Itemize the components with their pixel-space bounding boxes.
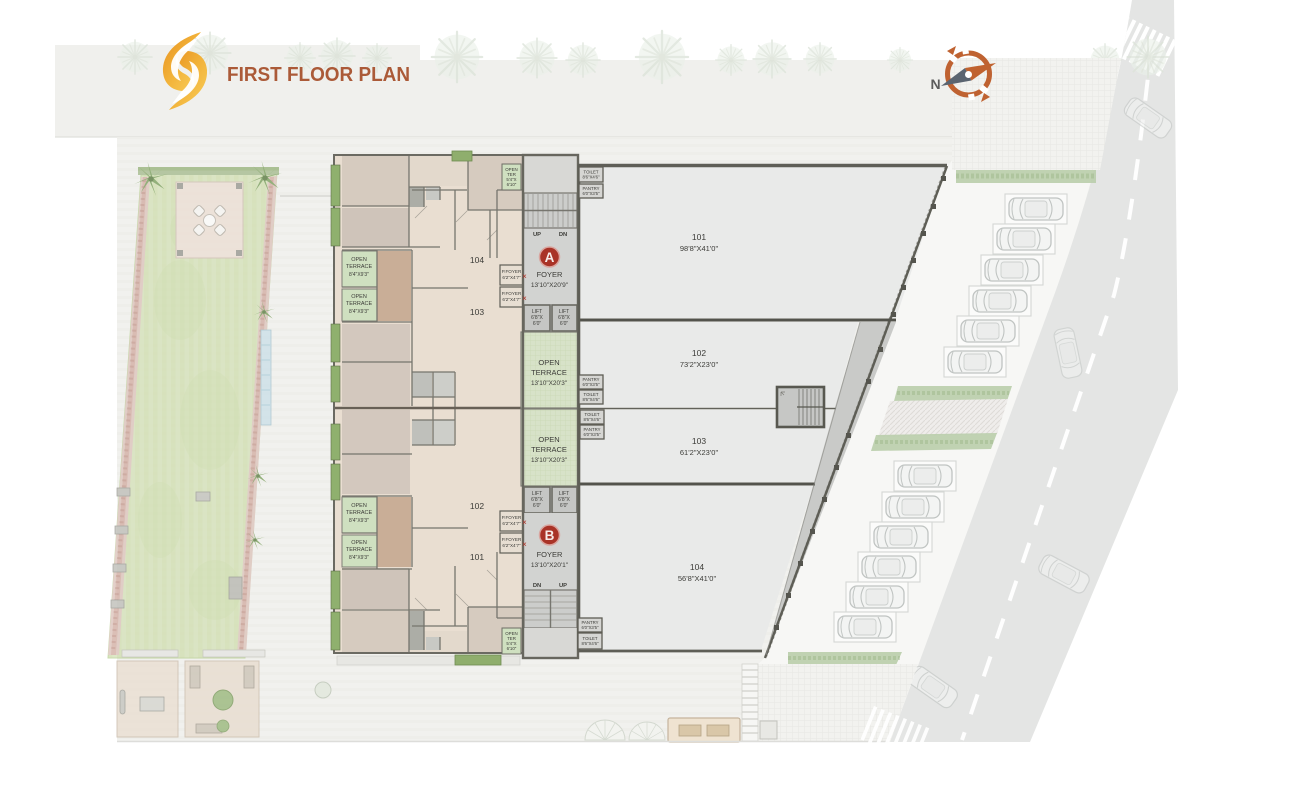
svg-text:73'2"X23'0": 73'2"X23'0": [680, 360, 719, 369]
svg-text:102: 102: [470, 501, 484, 511]
svg-text:DN: DN: [533, 583, 541, 589]
svg-text:13'10"X20'9": 13'10"X20'9": [531, 282, 569, 289]
svg-text:104: 104: [470, 255, 484, 265]
svg-text:×: ×: [522, 294, 527, 303]
svg-text:FOYER: FOYER: [537, 270, 563, 279]
svg-text:FIRST FLOOR PLAN: FIRST FLOOR PLAN: [227, 64, 410, 86]
svg-text:61'2"X23'0": 61'2"X23'0": [680, 448, 719, 457]
svg-text:56'8"X41'0": 56'8"X41'0": [678, 574, 717, 583]
svg-text:102: 102: [692, 348, 706, 358]
svg-text:8'6"X4'6": 8'6"X4'6": [581, 641, 599, 646]
svg-text:OPEN: OPEN: [538, 358, 559, 367]
svg-text:A: A: [545, 250, 555, 265]
svg-text:6'0": 6'0": [533, 503, 542, 509]
svg-text:DN: DN: [559, 232, 567, 238]
svg-text:13'10"X20'3": 13'10"X20'3": [531, 380, 567, 387]
svg-text:P.FOYER: P.FOYER: [502, 537, 522, 542]
svg-text:8'6"X4'6": 8'6"X4'6": [583, 417, 601, 422]
svg-text:TERRACE: TERRACE: [346, 264, 373, 270]
svg-text:P.FOYER: P.FOYER: [502, 291, 522, 296]
svg-text:103: 103: [470, 307, 484, 317]
svg-text:6'0"X3'5": 6'0"X3'5": [583, 432, 601, 437]
svg-text:TERRACE: TERRACE: [531, 368, 567, 377]
svg-text:OPEN: OPEN: [351, 503, 367, 509]
svg-text:13'10"X20'3": 13'10"X20'3": [531, 457, 567, 464]
svg-text:6'2"X4'7": 6'2"X4'7": [502, 297, 521, 302]
svg-text:6'0": 6'0": [560, 503, 569, 509]
svg-text:TERRACE: TERRACE: [531, 445, 567, 454]
svg-text:UP: UP: [559, 583, 567, 589]
svg-text:6'0": 6'0": [560, 321, 569, 327]
svg-text:98'8"X41'0": 98'8"X41'0": [680, 244, 719, 253]
svg-text:6'10": 6'10": [507, 646, 517, 651]
svg-text:TERRACE: TERRACE: [346, 301, 373, 307]
svg-text:B: B: [545, 528, 555, 543]
svg-text:OPEN: OPEN: [351, 294, 367, 300]
svg-text:101: 101: [692, 232, 706, 242]
svg-text:8'6"X4'6": 8'6"X4'6": [582, 397, 600, 402]
svg-text:P.FOYER: P.FOYER: [502, 515, 522, 520]
svg-text:104: 104: [690, 562, 704, 572]
svg-text:13'10"X20'1": 13'10"X20'1": [531, 562, 569, 569]
svg-text:OPEN: OPEN: [538, 435, 559, 444]
svg-text:6'0"X3'5": 6'0"X3'5": [582, 382, 600, 387]
svg-text:6'0"X3'5": 6'0"X3'5": [582, 191, 600, 196]
svg-text:×: ×: [522, 518, 527, 527]
svg-text:OPEN: OPEN: [351, 257, 367, 263]
svg-text:6'10": 6'10": [507, 182, 517, 187]
svg-text:8'4"X9'3": 8'4"X9'3": [349, 555, 369, 561]
svg-text:8'4"X9'3": 8'4"X9'3": [349, 272, 369, 278]
svg-text:8'4"X9'3": 8'4"X9'3": [349, 309, 369, 315]
svg-text:6'0"X3'5": 6'0"X3'5": [581, 625, 599, 630]
svg-text:6'0": 6'0": [533, 321, 542, 327]
svg-text:FOYER: FOYER: [537, 550, 563, 559]
svg-text:6'2"X4'7": 6'2"X4'7": [502, 543, 521, 548]
svg-text:8'6"X4'6": 8'6"X4'6": [582, 175, 600, 180]
svg-text:6'2"X4'7": 6'2"X4'7": [502, 275, 521, 280]
svg-text:TERRACE: TERRACE: [346, 547, 373, 553]
svg-text:6'2"X4'7": 6'2"X4'7": [502, 521, 521, 526]
svg-text:N: N: [930, 76, 940, 92]
svg-text:103: 103: [692, 436, 706, 446]
svg-text:P.FOYER: P.FOYER: [502, 269, 522, 274]
svg-text:OPEN: OPEN: [351, 540, 367, 546]
svg-text:8'4"X9'3": 8'4"X9'3": [349, 518, 369, 524]
svg-text:101: 101: [470, 552, 484, 562]
svg-text:TERRACE: TERRACE: [346, 510, 373, 516]
svg-text:×: ×: [522, 540, 527, 549]
svg-text:×: ×: [522, 272, 527, 281]
svg-text:UP: UP: [533, 232, 541, 238]
